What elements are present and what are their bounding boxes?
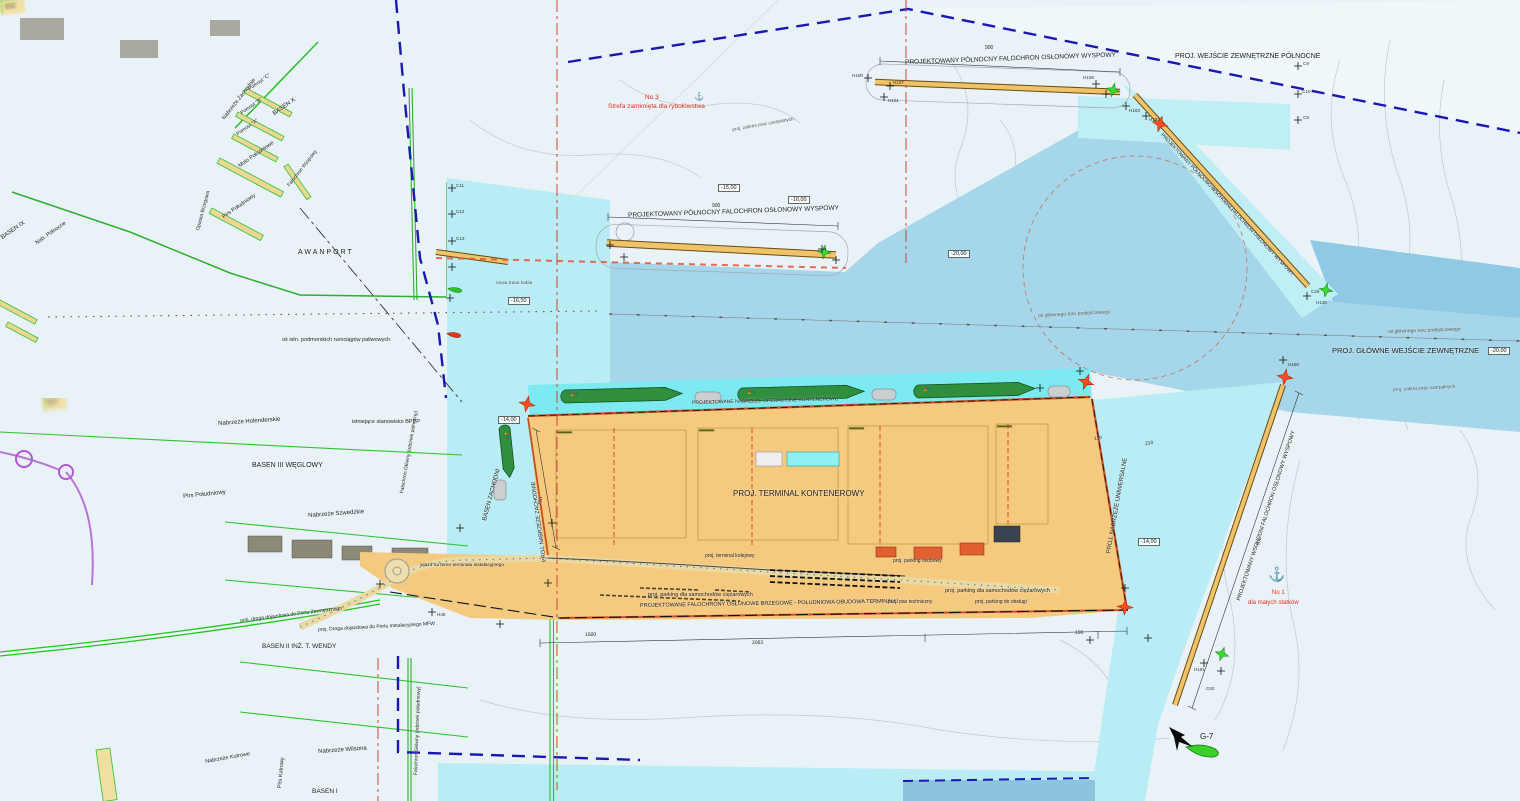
dim-210: 210 [1145, 441, 1154, 447]
label-basen-3: BASEN III WĘGLOWY [252, 462, 323, 469]
marker-h103: H103 [1129, 108, 1140, 113]
marker-c62: C62 [1206, 686, 1214, 691]
label-parking-trucks-2: proj. parking dla samochodów ciężarowych [945, 589, 1050, 595]
depth-15: -15,00 [718, 184, 740, 192]
label-basen-1: BASEN I [312, 789, 338, 796]
label-main-entrance: PROJ. GŁÓWNE WEJŚCIE ZEWNĘTRZNE [1332, 347, 1479, 355]
label-axis-pipelines: oś istn. podmorskich rurociągów paliwowy… [282, 338, 390, 344]
marker-h181: H181 [1194, 667, 1205, 672]
marker-h130: H130 [1316, 300, 1327, 305]
depth-16: -16,00 [788, 196, 810, 204]
label-terminal: PROJ. TERMINAL KONTENEROWY [733, 490, 865, 498]
dim-1500: 1500 [585, 633, 596, 638]
label-bppp: istniejące stanowisko BPPP [352, 420, 420, 426]
depth-20-b: -20,00 [1488, 347, 1510, 355]
label-basen-2: BASEN II INŻ. T. WENDY [262, 644, 336, 651]
marker-c11: C11 [456, 183, 464, 188]
depth-14-b: -14,00 [1138, 538, 1160, 546]
label-entrance-north: PROJ. WEJŚCIE ZEWNĘTRZNE PÓŁNOCNE [1175, 53, 1320, 60]
label-tech-strip: proj. pas techniczny [888, 600, 932, 605]
marker-c13: C13 [456, 236, 464, 241]
label-parking-service: proj. parking do obsługi [975, 600, 1027, 605]
dim-110: 110 [1094, 436, 1102, 442]
label-parking-trucks-1: proj. parking dla samochodów ciężarowych [648, 593, 753, 599]
dim-2063: 2063 [752, 641, 763, 646]
fishing-zone-anchor-icon: ⚓ [694, 92, 704, 101]
marker-c26: C26 [1311, 289, 1319, 294]
dim-900-north1: 900 [985, 46, 993, 51]
depth-20-a: -20,00 [948, 250, 970, 258]
label-awanport: AWANPORT [298, 249, 354, 256]
label-cable: nowa trasa kabla [496, 281, 532, 286]
port-plan-map[interactable]: PROJ. WEJŚCIE ZEWNĘTRZNE PÓŁNOCNE PROJEK… [0, 0, 1520, 801]
dim-190: 190 [1075, 631, 1083, 636]
marker-h150: H150 [1288, 362, 1299, 367]
marker-c12: C12 [456, 209, 464, 214]
marker-h152: H152 [1149, 117, 1160, 122]
label-gate: wjazd na teren terminalu instalacyjnego [420, 563, 504, 568]
marker-c8: C8 [1303, 115, 1309, 120]
marker-h107: H107 [893, 80, 904, 85]
label-anchorage-no1: No 1 [1272, 590, 1285, 596]
depth-1650: -16,50 [508, 297, 530, 305]
dim-900-north2: 900 [712, 204, 720, 209]
marker-h100: H100 [852, 73, 863, 78]
marker-c9: C9 [1303, 61, 1309, 66]
label-parking-cars: proj. parking osobowy [893, 559, 942, 564]
label-fishing-zone: Strefa zamknięta dla rybołówstwa [608, 104, 705, 111]
marker-c10: C10 [1302, 89, 1310, 94]
label-anchorage-small: dla małych statków [1248, 600, 1299, 606]
label-g7: G-7 [1200, 733, 1213, 741]
anchorage-anchor-icon: ⚓ [1268, 566, 1285, 583]
marker-h45: H45 [437, 612, 445, 617]
marker-h106: H106 [1083, 75, 1094, 80]
label-rail-terminal: proj. terminal kolejowy [705, 554, 754, 559]
marker-h101: H101 [888, 98, 899, 103]
depth-14-a: -14,00 [498, 416, 520, 424]
label-fishing-no3: No 3 [645, 95, 659, 102]
